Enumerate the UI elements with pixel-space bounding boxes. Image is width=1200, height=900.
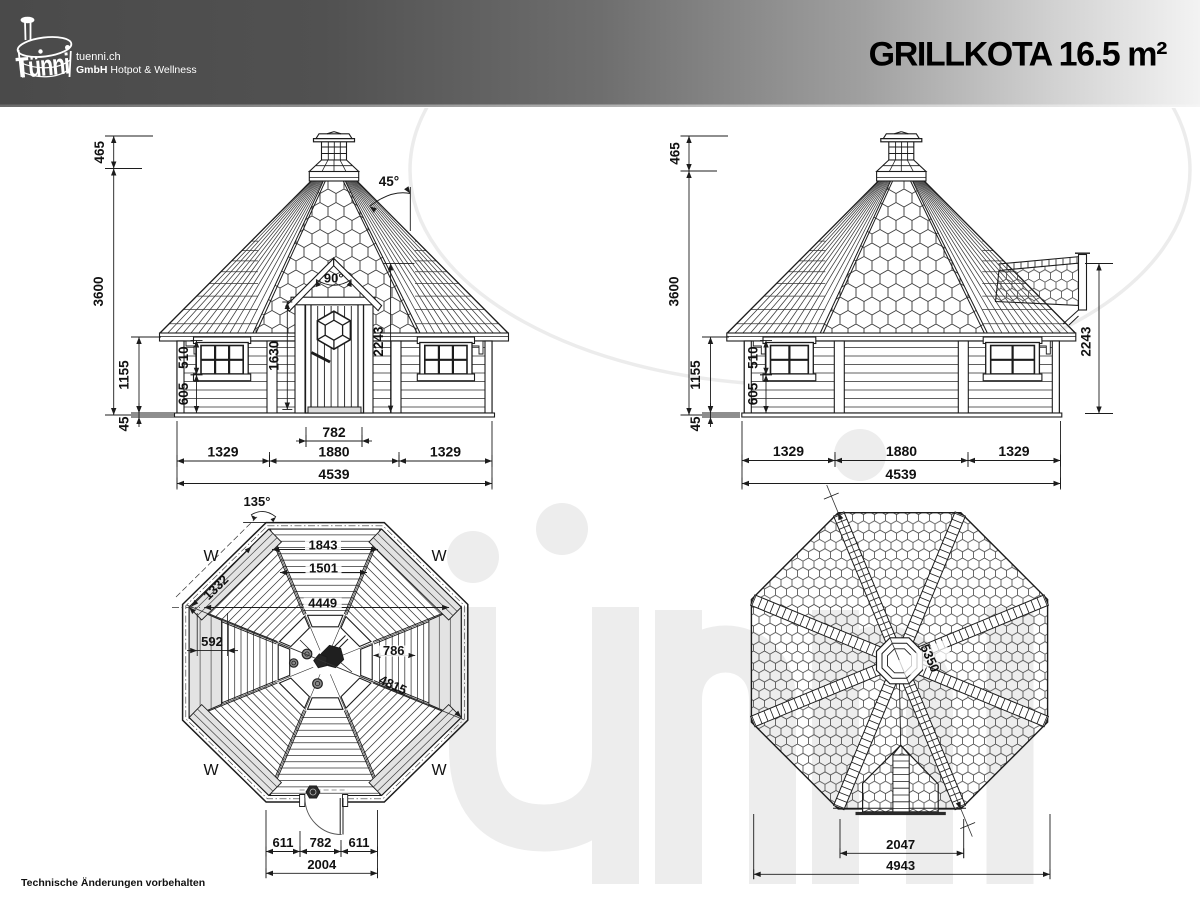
svg-text:1880: 1880: [886, 443, 917, 459]
svg-text:90°: 90°: [324, 271, 344, 286]
svg-text:GRILLKOTA 16.5 m²: GRILLKOTA 16.5 m²: [869, 36, 1167, 74]
svg-text:W: W: [431, 548, 447, 565]
svg-text:465: 465: [668, 142, 683, 165]
svg-text:611: 611: [349, 835, 370, 850]
svg-text:3600: 3600: [91, 276, 106, 306]
svg-text:782: 782: [310, 835, 332, 850]
svg-text:605: 605: [746, 382, 761, 405]
svg-text:1843: 1843: [309, 538, 338, 553]
svg-text:W: W: [431, 762, 447, 779]
svg-text:3600: 3600: [667, 276, 682, 306]
svg-text:611: 611: [273, 835, 294, 850]
svg-text:Technische Änderungen vorbehal: Technische Änderungen vorbehalten: [21, 876, 205, 889]
svg-text:2243: 2243: [1079, 326, 1094, 357]
svg-text:W: W: [203, 762, 219, 779]
svg-text:1329: 1329: [430, 444, 461, 460]
svg-text:1501: 1501: [309, 561, 338, 576]
svg-text:592: 592: [201, 634, 223, 649]
svg-text:Tünni: Tünni: [15, 48, 71, 84]
svg-text:45°: 45°: [379, 174, 399, 189]
svg-text:45: 45: [688, 416, 703, 432]
svg-text:2004: 2004: [307, 857, 337, 872]
svg-text:W: W: [203, 548, 219, 565]
svg-text:GmbH Hotpot & Wellness: GmbH Hotpot & Wellness: [76, 64, 197, 76]
svg-text:1155: 1155: [688, 360, 703, 390]
svg-text:1630: 1630: [267, 341, 282, 371]
svg-text:1329: 1329: [207, 444, 238, 460]
svg-text:2047: 2047: [886, 837, 915, 852]
svg-text:4943: 4943: [886, 858, 915, 873]
svg-text:4449: 4449: [308, 596, 337, 611]
svg-text:135°: 135°: [244, 494, 271, 509]
svg-text:4539: 4539: [318, 466, 349, 482]
svg-text:1155: 1155: [117, 360, 132, 390]
svg-text:45: 45: [117, 416, 132, 432]
svg-text:465: 465: [92, 141, 107, 164]
svg-text:605: 605: [176, 382, 191, 405]
svg-text:tuenni.ch: tuenni.ch: [76, 51, 121, 63]
svg-text:510: 510: [746, 346, 761, 369]
svg-text:1329: 1329: [998, 443, 1029, 459]
svg-text:2243: 2243: [371, 326, 386, 357]
svg-text:510: 510: [176, 346, 191, 369]
svg-text:786: 786: [383, 643, 405, 658]
svg-text:1329: 1329: [773, 443, 804, 459]
svg-text:782: 782: [322, 424, 346, 440]
svg-text:4539: 4539: [885, 466, 916, 482]
svg-text:1880: 1880: [318, 444, 349, 460]
